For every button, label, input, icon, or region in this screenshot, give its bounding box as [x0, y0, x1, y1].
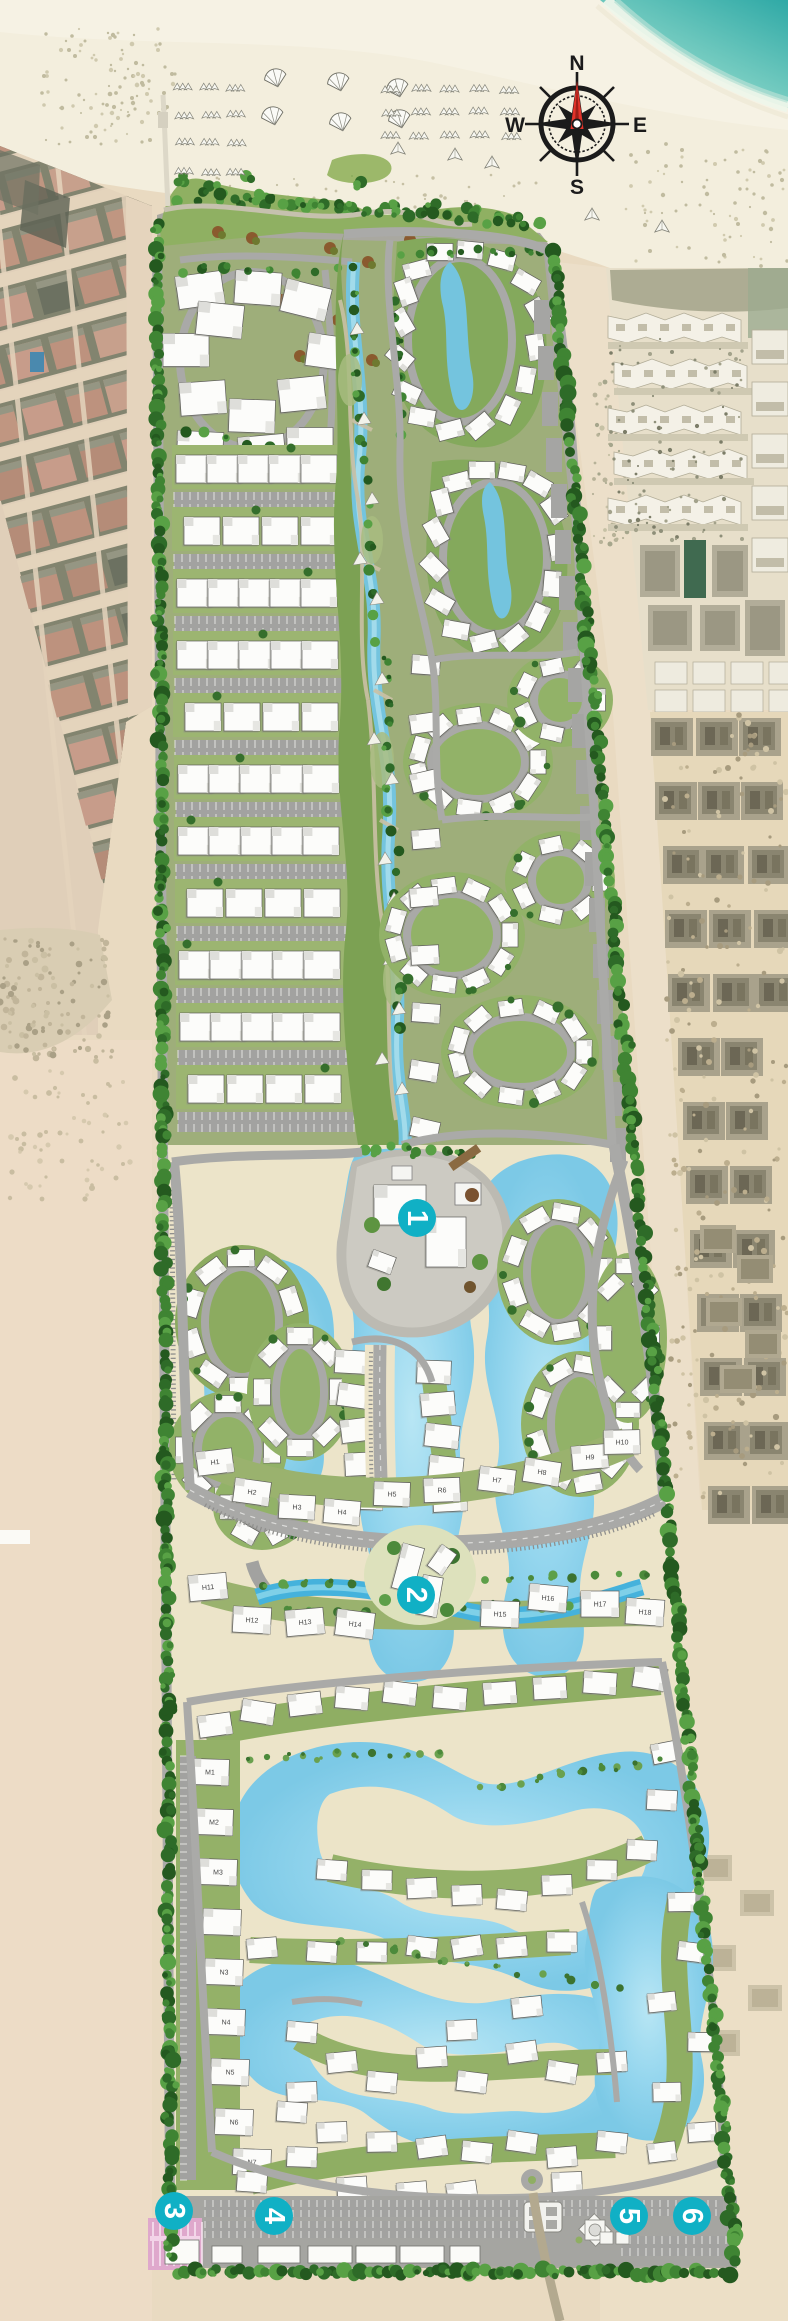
svg-text:H15: H15 [493, 1611, 506, 1618]
svg-text:H9: H9 [585, 1454, 595, 1462]
svg-text:H4: H4 [337, 1509, 347, 1517]
svg-text:H11: H11 [202, 1584, 215, 1592]
svg-text:H7: H7 [492, 1477, 502, 1485]
svg-text:R6: R6 [437, 1487, 446, 1494]
svg-text:H12: H12 [245, 1617, 258, 1625]
svg-text:H8: H8 [537, 1469, 547, 1477]
svg-text:H18: H18 [638, 1609, 651, 1617]
svg-text:H2: H2 [247, 1489, 257, 1497]
svg-text:H10: H10 [616, 1439, 629, 1446]
svg-text:M1: M1 [205, 1769, 215, 1776]
svg-text:H5: H5 [387, 1491, 396, 1498]
svg-text:H1: H1 [210, 1459, 220, 1467]
svg-text:H17: H17 [594, 1602, 607, 1609]
svg-text:N6: N6 [229, 2119, 238, 2126]
svg-text:N4: N4 [221, 2019, 230, 2026]
svg-text:H3: H3 [292, 1504, 301, 1511]
svg-text:N5: N5 [225, 2069, 234, 2076]
svg-text:N3: N3 [219, 1969, 228, 1976]
svg-text:M3: M3 [213, 1869, 223, 1876]
svg-text:M2: M2 [209, 1819, 219, 1826]
svg-text:H13: H13 [298, 1619, 312, 1627]
svg-text:H16: H16 [541, 1595, 555, 1603]
